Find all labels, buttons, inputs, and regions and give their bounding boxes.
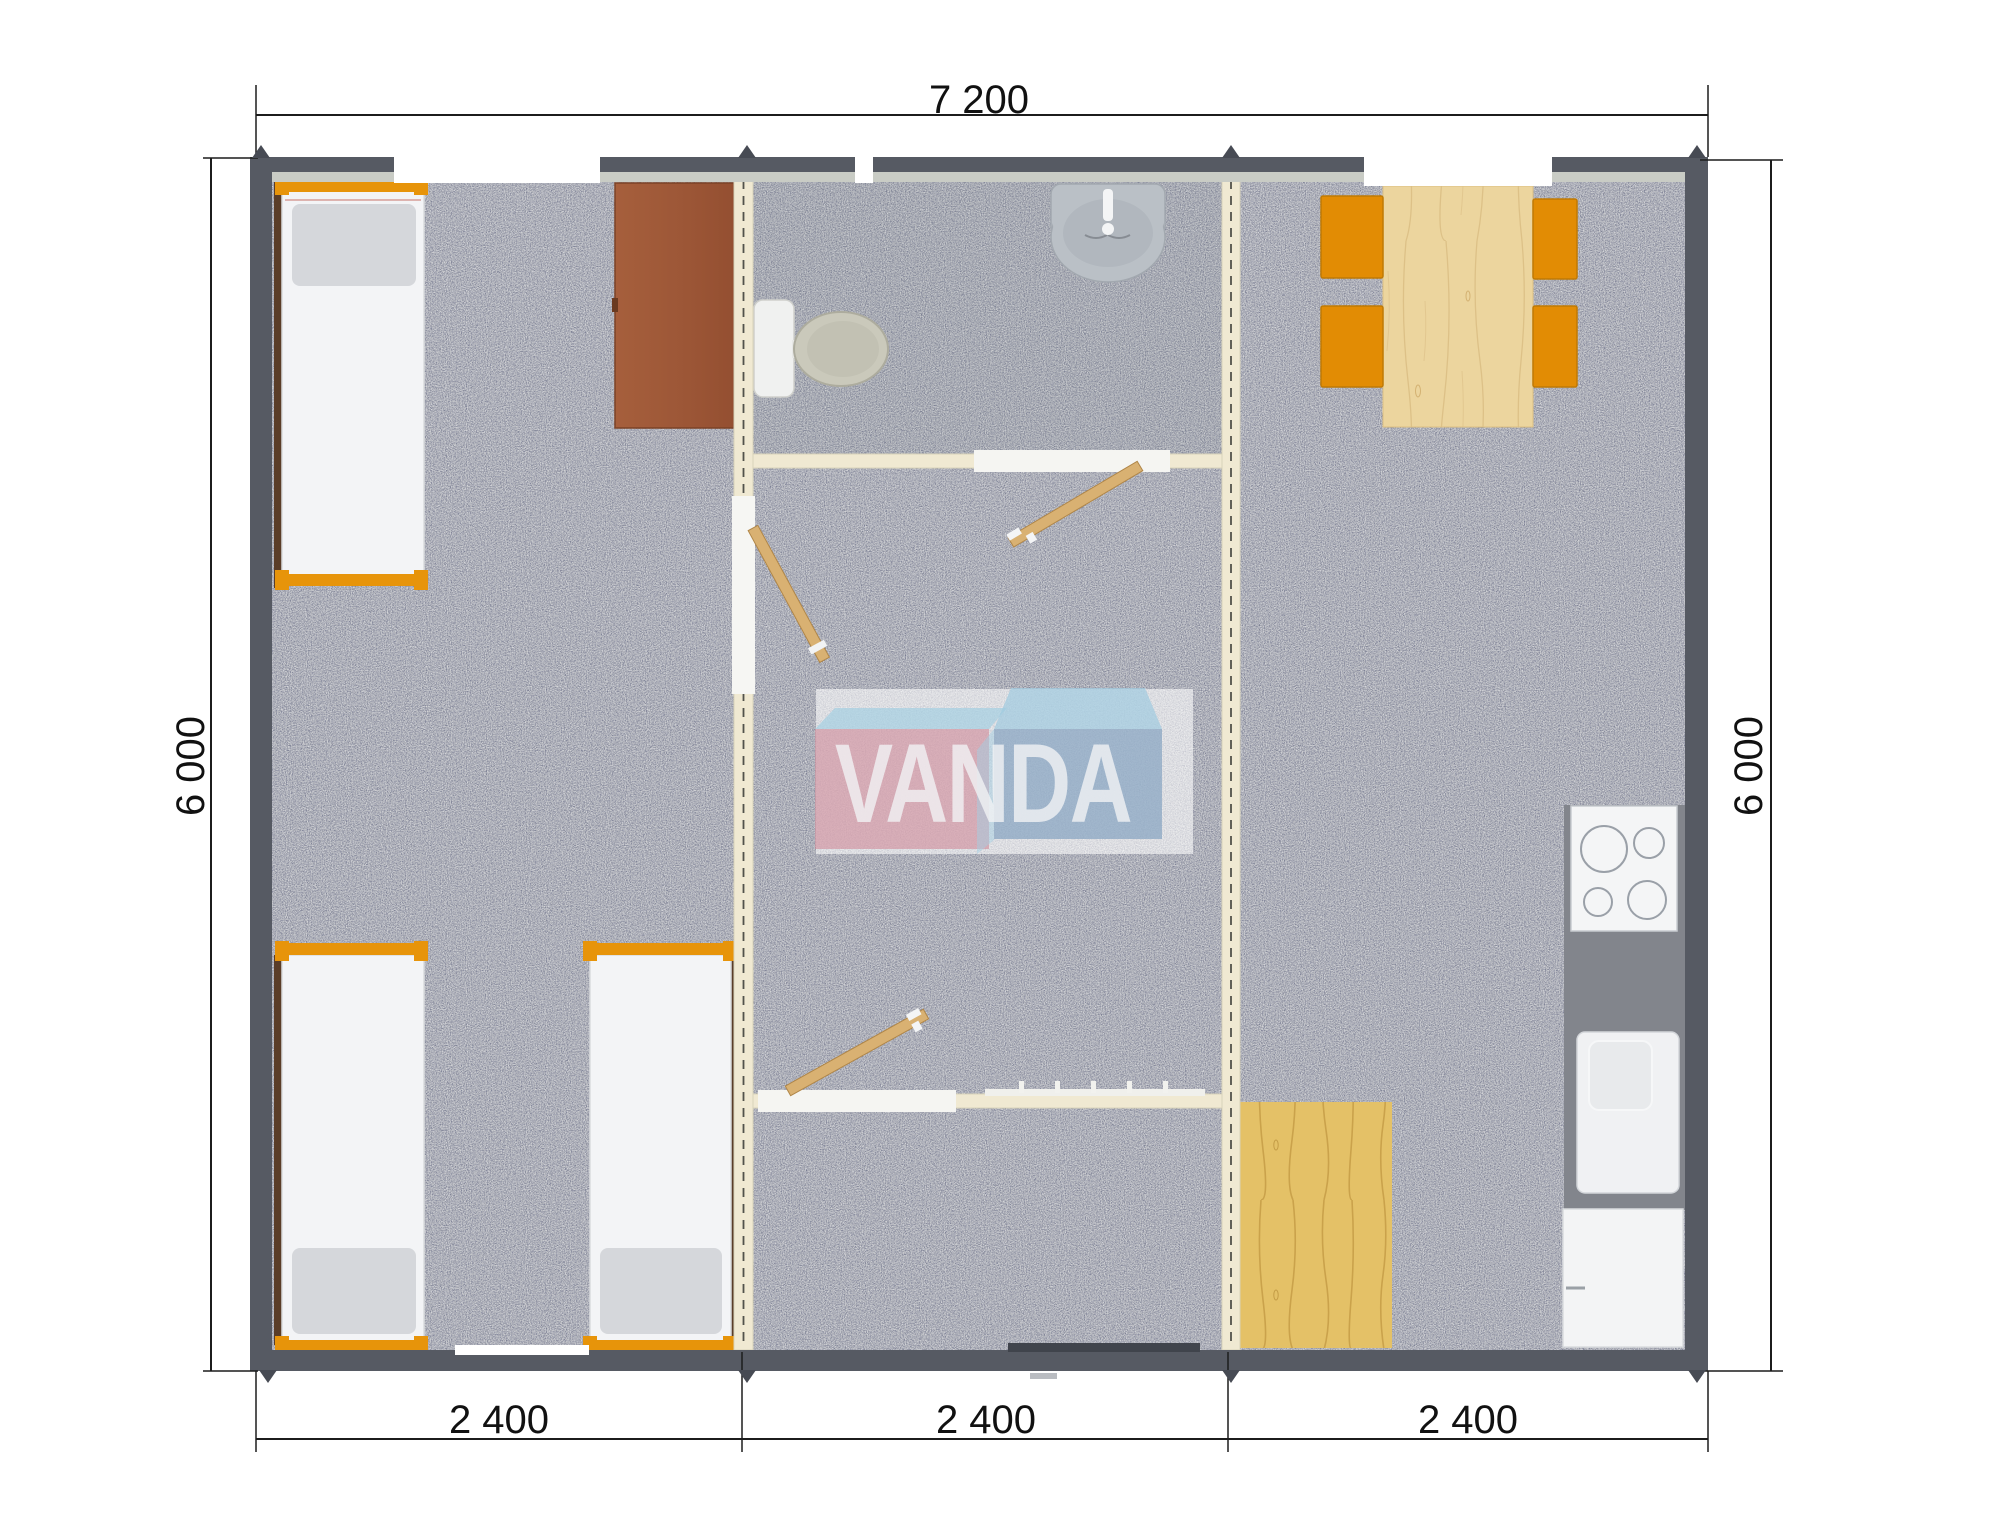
svg-text:7 200: 7 200 [929,78,1029,122]
svg-text:2 400: 2 400 [449,1398,549,1442]
svg-text:2 400: 2 400 [1418,1398,1518,1442]
svg-text:6 000: 6 000 [1727,716,1771,816]
svg-text:6 000: 6 000 [169,716,213,816]
svg-text:2 400: 2 400 [936,1398,1036,1442]
svg-text:VANDA: VANDA [835,722,1131,847]
